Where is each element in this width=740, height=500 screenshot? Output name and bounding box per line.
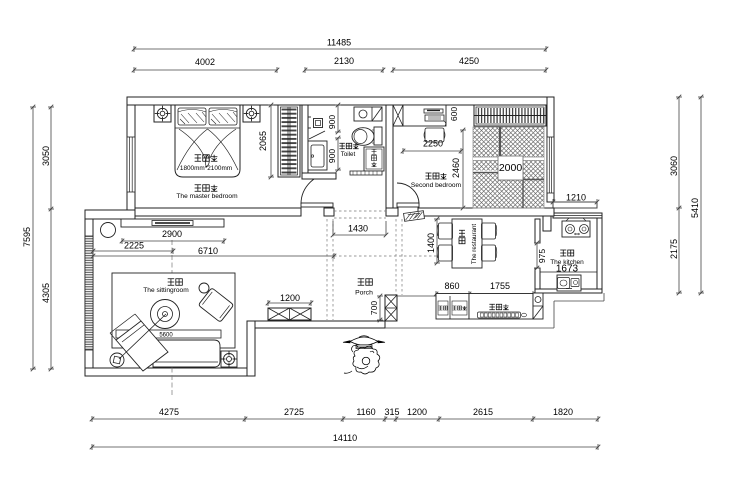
svg-text:2175: 2175 [669, 239, 679, 259]
svg-text:1673: 1673 [556, 264, 579, 275]
svg-text:5600: 5600 [159, 333, 173, 339]
svg-text:315: 315 [384, 407, 399, 417]
svg-text:3060: 3060 [669, 156, 679, 176]
svg-text:2000: 2000 [499, 162, 523, 174]
svg-text:2725: 2725 [284, 407, 304, 417]
svg-text:975: 975 [537, 249, 547, 263]
svg-text:5410: 5410 [690, 198, 700, 218]
svg-text:2065: 2065 [258, 131, 268, 151]
svg-text:The sittingroom: The sittingroom [143, 287, 189, 294]
svg-text:6710: 6710 [198, 246, 218, 256]
svg-text:7595: 7595 [22, 227, 32, 247]
svg-text:The master bedroom: The master bedroom [176, 193, 238, 200]
svg-text:4002: 4002 [195, 57, 215, 67]
svg-text:The restaurant: The restaurant [471, 224, 478, 265]
svg-text:1400: 1400 [426, 233, 436, 253]
svg-text:14110: 14110 [333, 433, 357, 443]
svg-text:11485: 11485 [327, 38, 351, 48]
svg-text:600: 600 [449, 107, 459, 121]
svg-text:1800mm*2100mm: 1800mm*2100mm [180, 165, 232, 172]
svg-text:860: 860 [444, 281, 459, 291]
svg-text:2225: 2225 [124, 241, 144, 251]
svg-text:2615: 2615 [473, 407, 493, 417]
svg-text:Toilet: Toilet [341, 151, 356, 158]
svg-text:900: 900 [327, 115, 337, 129]
svg-text:4305: 4305 [41, 283, 51, 303]
svg-text:1160: 1160 [356, 407, 375, 417]
svg-text:4250: 4250 [459, 56, 479, 66]
svg-text:Porch: Porch [355, 290, 373, 297]
svg-text:2250: 2250 [423, 139, 443, 149]
svg-text:900: 900 [327, 149, 337, 163]
svg-text:4275: 4275 [159, 407, 179, 417]
svg-text:1200: 1200 [280, 293, 300, 303]
svg-text:1210: 1210 [566, 193, 586, 203]
svg-text:1430: 1430 [348, 224, 368, 234]
svg-text:1820: 1820 [553, 407, 573, 417]
svg-text:1755: 1755 [490, 281, 510, 291]
svg-text:3050: 3050 [41, 146, 51, 166]
svg-text:1200: 1200 [407, 407, 427, 417]
svg-text:2130: 2130 [334, 56, 354, 66]
svg-text:2900: 2900 [162, 229, 182, 239]
svg-text:2460: 2460 [451, 158, 461, 178]
svg-text:Second bedroom: Second bedroom [411, 182, 462, 189]
svg-text:700: 700 [369, 301, 379, 315]
